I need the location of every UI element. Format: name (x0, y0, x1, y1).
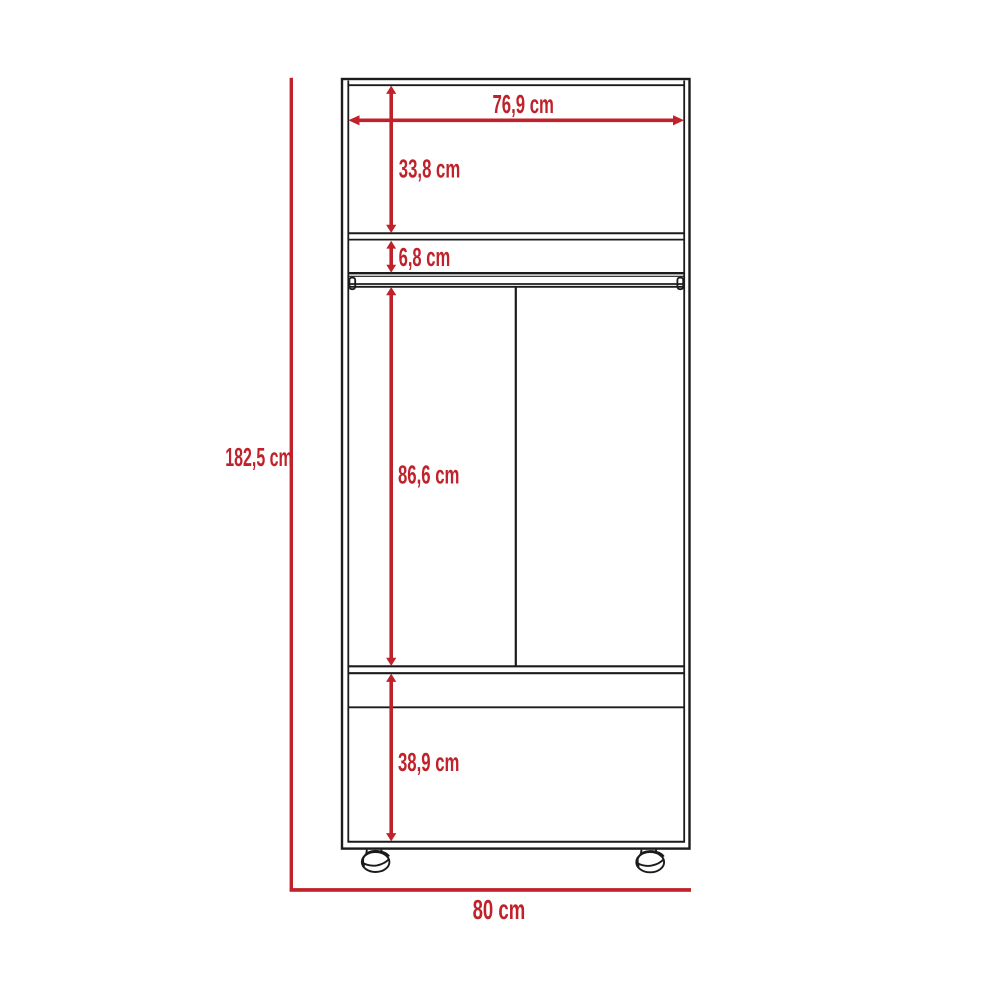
svg-text:80 cm: 80 cm (473, 895, 526, 925)
svg-text:76,9 cm: 76,9 cm (493, 89, 554, 119)
svg-text:6,8 cm: 6,8 cm (399, 242, 451, 272)
svg-text:33,8 cm: 33,8 cm (399, 154, 460, 184)
svg-text:38,9 cm: 38,9 cm (398, 747, 459, 777)
svg-text:86,6 cm: 86,6 cm (398, 460, 459, 490)
svg-text:182,5 cm: 182,5 cm (225, 442, 292, 472)
